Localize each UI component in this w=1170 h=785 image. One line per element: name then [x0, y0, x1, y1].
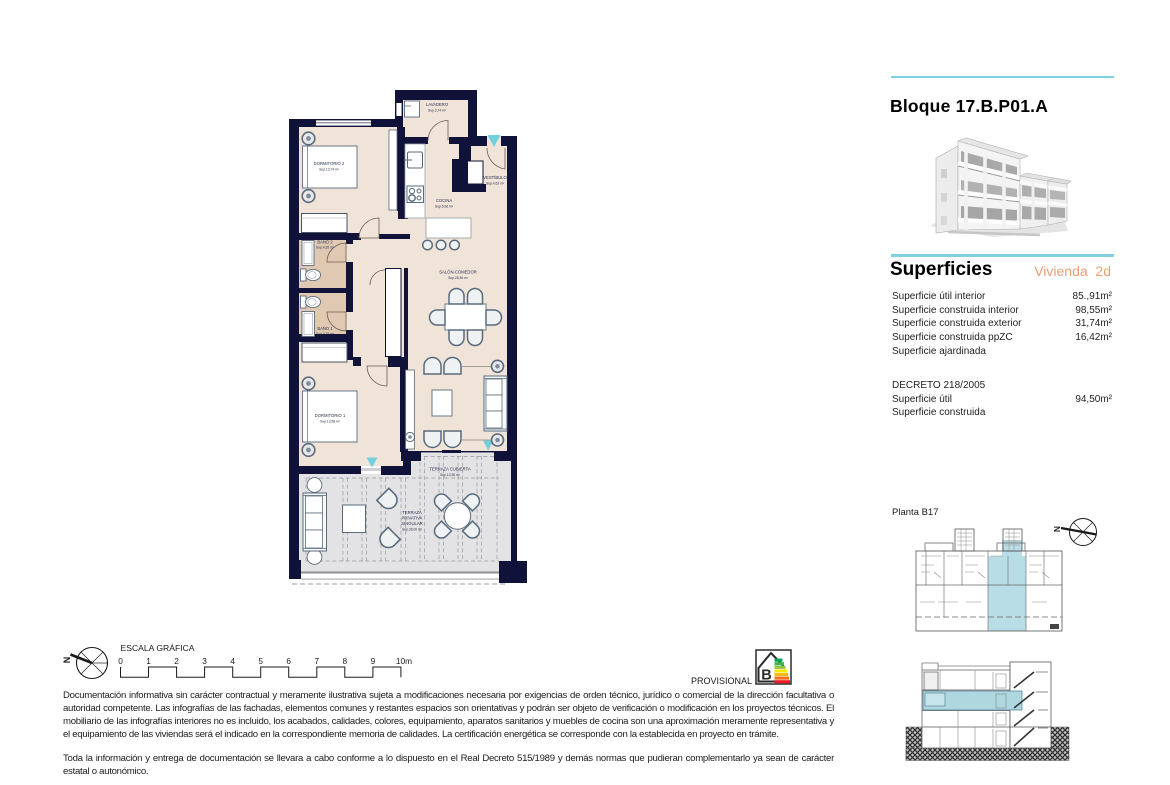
svg-text:Sup.4,35 m²: Sup.4,35 m² — [316, 332, 335, 336]
svg-text:TERRAZA CUBIERTA: TERRAZA CUBIERTA — [429, 467, 470, 472]
svg-text:B: B — [761, 668, 771, 684]
svg-text:N: N — [62, 657, 72, 664]
svg-text:1: 1 — [146, 656, 151, 666]
svg-text:0: 0 — [118, 656, 123, 666]
svg-text:3: 3 — [202, 656, 207, 666]
svg-text:DORMITORIO 2: DORMITORIO 2 — [314, 161, 345, 166]
svg-text:Sup.13,74 m²: Sup.13,74 m² — [319, 168, 340, 172]
svg-text:Sup.4,63 m²: Sup.4,63 m² — [486, 182, 505, 186]
svg-text:Sup.4,35 m²: Sup.4,35 m² — [316, 246, 335, 250]
svg-text:VESTÍBULO: VESTÍBULO — [483, 175, 507, 180]
svg-text:DORMITORIO 1: DORMITORIO 1 — [315, 413, 346, 418]
svg-text:8: 8 — [342, 656, 347, 666]
svg-text:Sup.13,26 m²: Sup.13,26 m² — [440, 473, 461, 477]
svg-text:Sup.3,74 m²: Sup.3,74 m² — [428, 109, 447, 113]
svg-text:4: 4 — [230, 656, 235, 666]
svg-text:7: 7 — [314, 656, 319, 666]
svg-text:ESCALA GRÁFICA: ESCALA GRÁFICA — [121, 643, 195, 653]
svg-text:SINGULAR: SINGULAR — [401, 521, 422, 526]
svg-text:5: 5 — [258, 656, 263, 666]
svg-text:Sup.36,00 m²: Sup.36,00 m² — [402, 528, 423, 532]
svg-text:9: 9 — [371, 656, 376, 666]
svg-text:Sup.13,58 m²: Sup.13,58 m² — [320, 420, 341, 424]
svg-text:6: 6 — [286, 656, 291, 666]
svg-text:LAVADERO: LAVADERO — [426, 102, 449, 107]
svg-text:COCINA: COCINA — [436, 198, 452, 203]
svg-text:Sup.5,96 m²: Sup.5,96 m² — [435, 205, 454, 209]
svg-text:10m: 10m — [396, 656, 412, 666]
svg-text:BAÑO 1: BAÑO 1 — [317, 326, 333, 331]
svg-text:2: 2 — [174, 656, 179, 666]
svg-text:BAÑO 2: BAÑO 2 — [317, 240, 333, 245]
svg-text:N: N — [1052, 526, 1062, 532]
svg-text:Sup.28,36 m²: Sup.28,36 m² — [448, 276, 469, 280]
svg-text:SALÓN-COMEDOR: SALÓN-COMEDOR — [439, 270, 476, 275]
svg-text:TERRAZA: TERRAZA — [402, 510, 422, 515]
svg-text:PRIVATIVA: PRIVATIVA — [402, 516, 423, 521]
